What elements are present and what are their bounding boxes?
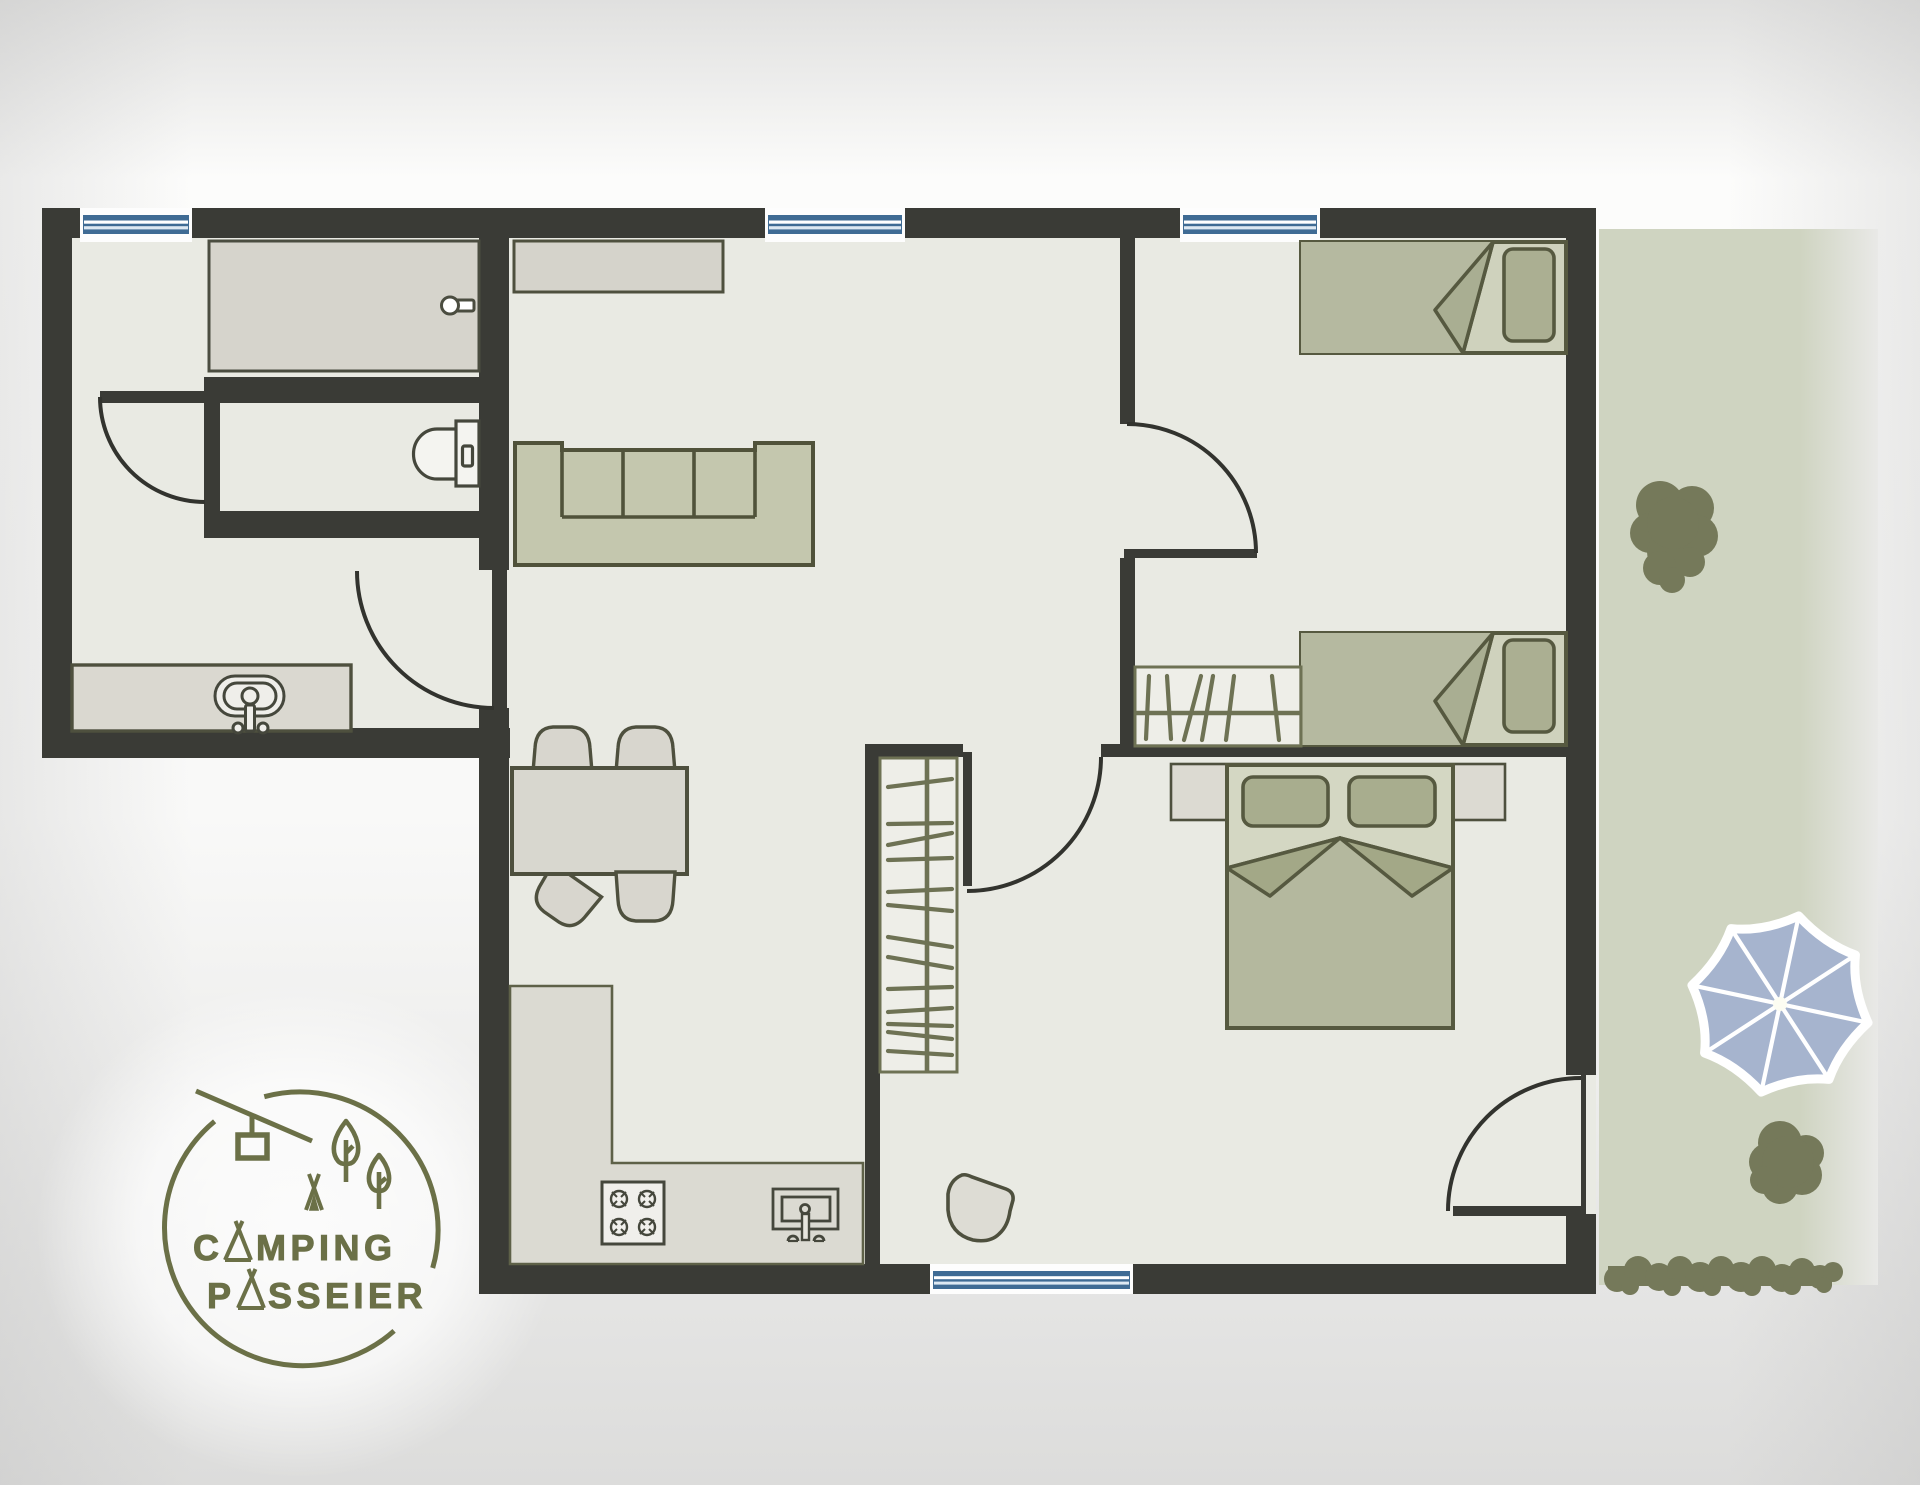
svg-text:SSEIER: SSEIER [268,1275,427,1316]
svg-text:C: C [193,1227,219,1268]
svg-text:P: P [207,1275,231,1316]
svg-text:MPING: MPING [256,1227,397,1268]
